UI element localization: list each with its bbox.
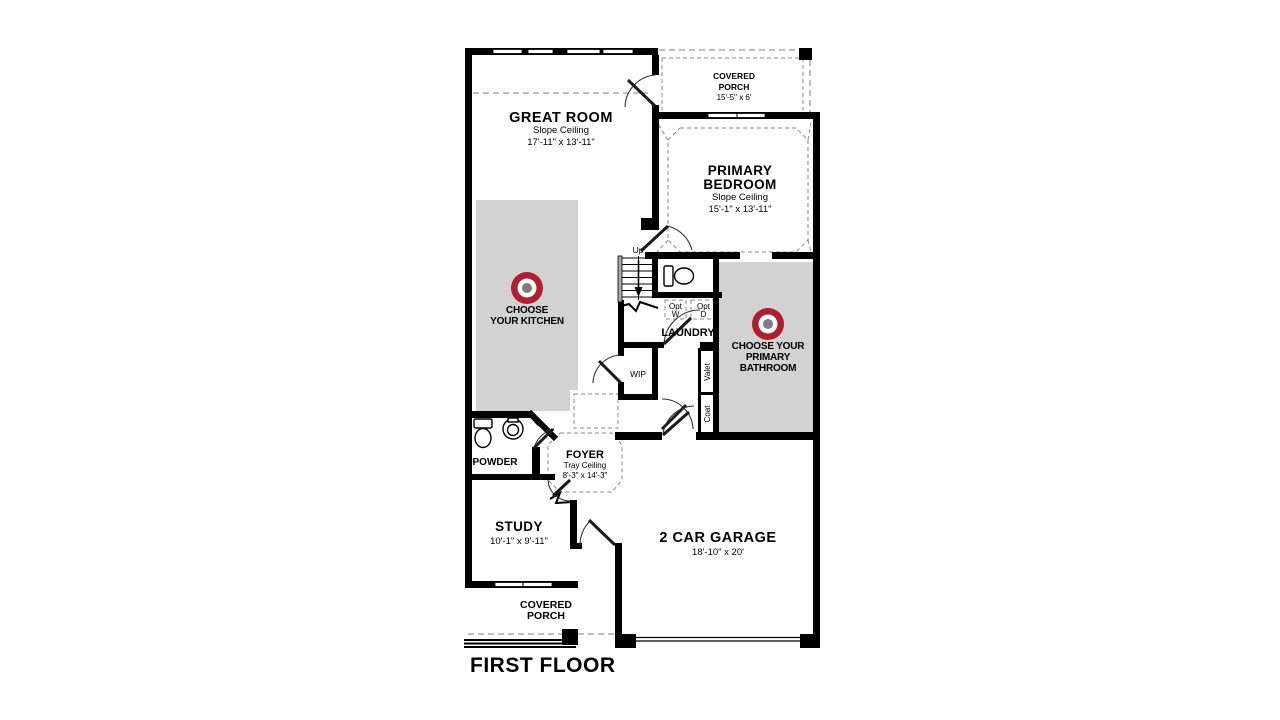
stair-rail <box>618 256 622 302</box>
window <box>603 50 633 54</box>
floor-plan-page: CHOOSE YOUR KITCHEN CHOOSE YOUR PRIMARY … <box>0 0 1280 720</box>
great-room-dims: 17'-11" x 13'-11" <box>527 137 595 148</box>
garage-door <box>636 638 800 642</box>
bullseye-icon-center <box>763 319 773 329</box>
toilet-tank <box>474 419 492 428</box>
bullseye-icon-center <box>522 283 532 293</box>
covered-porch-top-label: PORCH <box>719 82 750 92</box>
primary-bedroom-dims: 15'-1" x 13'-11" <box>708 204 771 215</box>
bedroom-ceiling-hip <box>808 240 811 252</box>
door-leaf <box>534 429 553 448</box>
closet-top-wall <box>698 348 715 351</box>
powder-angled-jamb <box>529 412 540 424</box>
covered-porch-bottom-label: PORCH <box>527 610 565 622</box>
covered-porch-top-dims: 15'-5" x 6' <box>717 93 752 102</box>
staircase <box>618 256 655 302</box>
great-room-ceiling: Slope Ceiling <box>533 125 589 136</box>
bathroom-callout-text: CHOOSE YOUR <box>732 341 806 352</box>
opt-washer-label: W <box>672 310 680 319</box>
study-label: STUDY <box>495 519 543 534</box>
primary-bedroom-ceiling: Slope Ceiling <box>712 192 768 203</box>
powder-label: POWDER <box>473 457 519 468</box>
window <box>528 50 553 54</box>
foyer-dims: 8'-3" x 14'-3" <box>563 471 608 480</box>
toilet-tank <box>664 266 673 286</box>
bedroom-ceiling-hip <box>808 122 811 140</box>
door-arc <box>668 226 692 250</box>
closet-front-wall <box>698 350 701 432</box>
foyer-ceiling: Tray Ceiling <box>564 461 606 470</box>
porch-column <box>562 629 578 645</box>
toilet-bowl <box>475 429 491 448</box>
stairs-up-label: Up <box>633 245 644 255</box>
kitchen-callout-text: YOUR KITCHEN <box>490 316 564 327</box>
window <box>493 50 522 54</box>
garage-label: 2 CAR GARAGE <box>659 530 776 546</box>
front-door-arc <box>580 521 590 545</box>
kitchen-callout-text: CHOOSE <box>506 305 549 316</box>
covered-porch-top-label: COVERED <box>713 71 755 81</box>
great-room-label: GREAT ROOM <box>509 110 613 126</box>
wip-label: WIP <box>630 369 646 379</box>
sink-basin-inner <box>508 425 519 436</box>
front-door-leaf <box>589 520 615 545</box>
floor-plan-drawing: CHOOSE YOUR KITCHEN CHOOSE YOUR PRIMARY … <box>0 0 1280 720</box>
valet-closet-label: Valet <box>703 362 712 380</box>
study-dims: 10'-1" x 9'-11" <box>490 536 548 547</box>
bathroom-callout-text: BATHROOM <box>740 363 797 374</box>
foyer-label: FOYER <box>566 449 604 461</box>
garage-dims: 18'-10" x 20' <box>692 547 744 558</box>
primary-bedroom-label: BEDROOM <box>703 177 776 192</box>
window <box>567 50 600 54</box>
bedroom-ceiling-hip <box>657 240 668 252</box>
toilet-bowl <box>675 268 694 284</box>
coat-closet-label: Coat <box>703 405 712 423</box>
stair-direction-arrow-head <box>635 287 643 297</box>
bathroom-callout-text: PRIMARY <box>746 352 791 363</box>
door-leaf <box>599 361 621 383</box>
closet-partition-wall <box>698 392 715 395</box>
door-leaf <box>628 80 655 106</box>
opt-dryer-label: D <box>701 310 707 319</box>
primary-bedroom-label: PRIMARY <box>708 163 773 178</box>
plan-title: FIRST FLOOR <box>470 654 616 677</box>
sink-faucet <box>508 418 518 422</box>
laundry-label: LAUNDRY <box>661 327 715 339</box>
kitchen-casework-dashed <box>574 394 618 428</box>
